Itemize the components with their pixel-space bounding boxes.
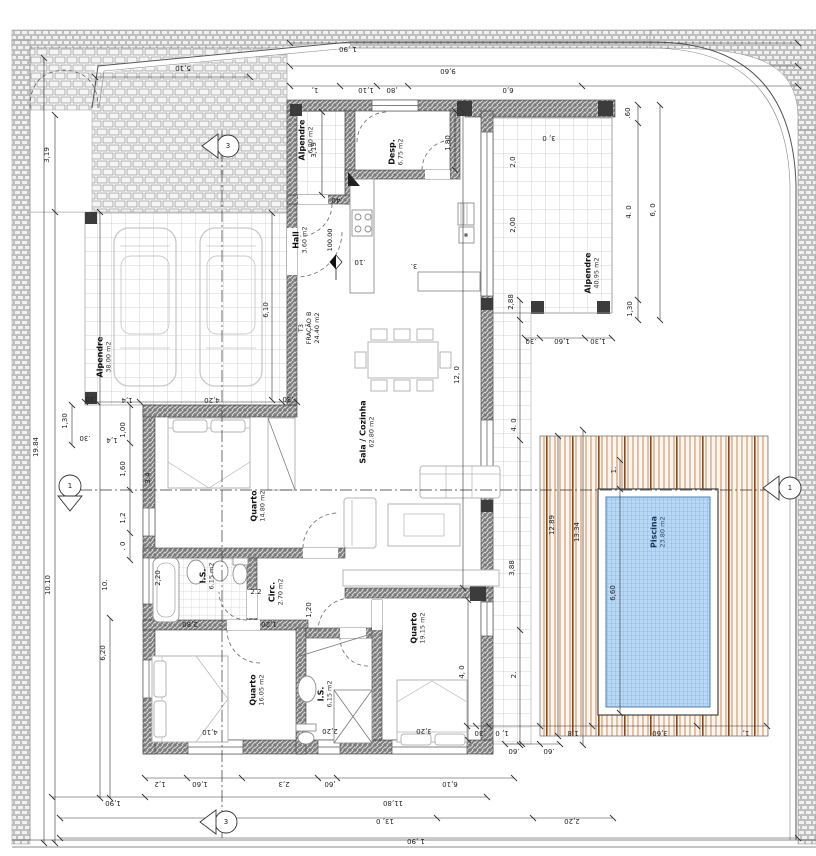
terrace-strip-tiles bbox=[493, 313, 531, 744]
bed-quarto3 bbox=[397, 680, 467, 742]
kitchen-island bbox=[418, 272, 480, 291]
floor-plan-canvas: Alpendre 38.00 m2 Alpendre 6.80 m2 Hall … bbox=[0, 0, 816, 856]
plan-drawing bbox=[0, 0, 816, 856]
washbasin bbox=[298, 676, 316, 702]
dining-table bbox=[368, 342, 438, 378]
sofa bbox=[420, 466, 500, 498]
washbasin bbox=[212, 561, 228, 581]
entry-porch-tiles bbox=[290, 111, 345, 195]
fridge bbox=[458, 203, 474, 225]
washbasin bbox=[187, 560, 205, 584]
level-marker-icon bbox=[330, 255, 342, 280]
toilet bbox=[233, 564, 247, 584]
tv-bench bbox=[343, 570, 499, 586]
pool-water bbox=[606, 497, 710, 707]
east-porch-tiles bbox=[493, 118, 612, 313]
toilet bbox=[298, 732, 314, 744]
armchair bbox=[344, 498, 376, 548]
